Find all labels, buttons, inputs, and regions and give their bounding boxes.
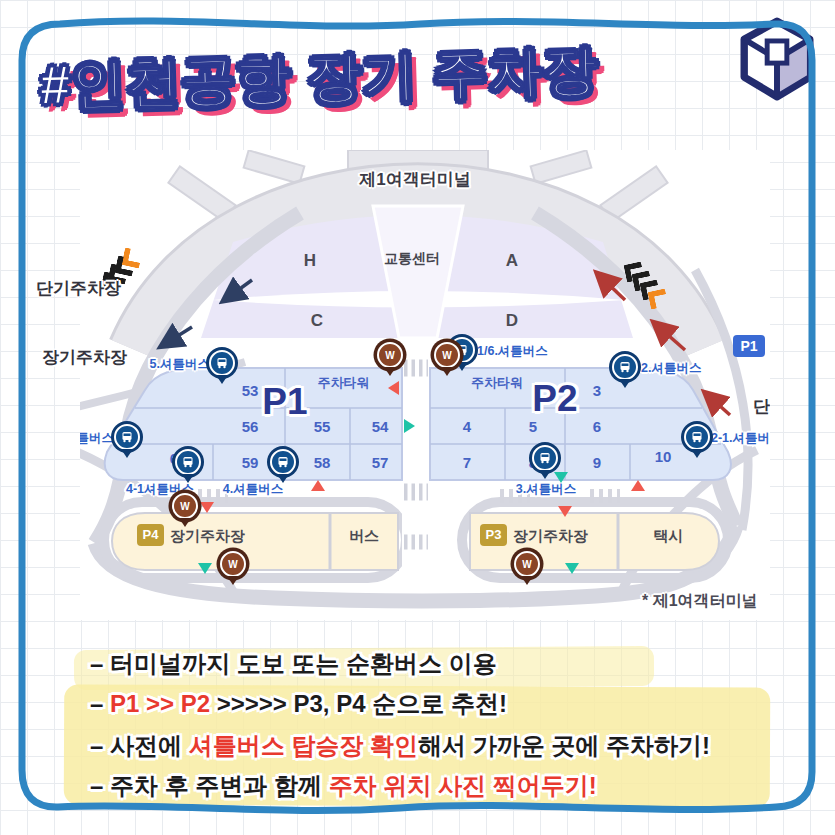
p1-section: 59 <box>242 454 259 471</box>
p2-section: 10 <box>655 448 672 465</box>
walkway-pin: W <box>220 551 246 577</box>
chevron-right-icon <box>647 288 668 309</box>
p4-lot-label: 장기주차장 <box>170 527 245 546</box>
tip-text: – 주차 후 주변과 함께 <box>90 772 329 799</box>
tip-text: >>>>> P3, P4 순으로 추천! <box>210 690 507 717</box>
gate-c-label: C <box>302 311 332 331</box>
bus-zone-label: 버스 <box>330 527 398 546</box>
bus-icon <box>691 431 703 443</box>
direction-triangle-icon <box>198 563 212 574</box>
bus-stop-pin <box>532 445 558 471</box>
tip-line-2: – P1 >> P2 >>>>> P3, P4 순으로 추천! <box>90 688 507 720</box>
p2-section: 6 <box>593 418 601 435</box>
bus-icon <box>121 431 133 443</box>
short-term-parking-label: 단기주차장 <box>36 277 121 300</box>
shuttle-stop-label: 4-1셔틀버스 <box>105 481 215 498</box>
long-term-parking-label: 장기주차장 <box>42 346 127 369</box>
p1-section: 56 <box>242 418 259 435</box>
bus-icon <box>182 456 194 468</box>
bus-icon <box>539 452 551 464</box>
p3-lot-label: 장기주차장 <box>513 527 588 546</box>
shuttle-stop-label: 2.셔틀버스 <box>641 360 701 377</box>
shuttle-stop-label: 2-1.셔틀버스 <box>711 430 770 447</box>
page-title: #인천공항 장기 주차장 <box>39 34 599 123</box>
direction-triangle-icon <box>404 419 415 433</box>
p4-badge: P4 <box>137 524 164 546</box>
bus-stop-pin <box>684 424 710 450</box>
map-footnote: * 제1여객터미널 <box>642 591 758 612</box>
tip-text-red: 셔틀버스 탑승장 확인 <box>189 732 418 759</box>
map-roads-layer <box>80 150 770 620</box>
airport-parking-map: 제1여객터미널 교통센터 H A C D P1 P2 주차타워 주차타워 53 … <box>80 150 770 620</box>
p1-section: 53 <box>242 382 259 399</box>
p2-section: 3 <box>593 382 601 399</box>
p1-section: 57 <box>372 454 389 471</box>
taxi-zone-label: 택시 <box>618 527 719 546</box>
p1-road-badge: P1 <box>733 335 765 357</box>
shuttle-stop-label: 4.셔틀버스 <box>203 481 303 498</box>
bus-stop-pin <box>175 449 201 475</box>
p1-section: 54 <box>372 418 389 435</box>
short-term-partial-label: 단 <box>753 395 770 418</box>
shuttle-stop-label: 셔틀버스 <box>80 430 114 447</box>
bus-stop-pin <box>612 354 638 380</box>
tip-line-1: – 터미널까지 도보 또는 순환버스 이용 <box>90 648 497 680</box>
direction-triangle-icon <box>200 502 214 513</box>
p2-section: 4 <box>463 418 471 435</box>
shuttle-stop-label: 3.셔틀버스 <box>496 481 596 498</box>
p1-section: 55 <box>314 418 331 435</box>
walkway-letter: W <box>174 495 196 517</box>
transport-center-label: 교통센터 <box>372 250 452 268</box>
terminal-label: 제1여객터미널 <box>315 168 515 191</box>
direction-triangle-icon <box>565 563 579 574</box>
walkway-letter: W <box>222 553 244 575</box>
bus-icon <box>277 456 289 468</box>
tip-text-red: 주차 위치 사진 찍어두기! <box>329 772 597 799</box>
walkway-pin: W <box>434 342 460 368</box>
bus-icon <box>619 361 631 373</box>
bus-stop-pin <box>270 449 296 475</box>
walkway-letter: W <box>379 344 401 366</box>
p2-section: 7 <box>463 454 471 471</box>
infographic-page: { "title": { "text": "#인천공항 장기 주차장" }, "… <box>0 0 835 835</box>
center-road <box>402 340 430 590</box>
p1-tower-label: 주차타워 <box>285 374 402 392</box>
gate-a-label: A <box>497 251 527 271</box>
gate-h-label: H <box>295 251 325 271</box>
tip-text: 해서 가까운 곳에 주차하기! <box>418 732 710 759</box>
p1-section: 58 <box>314 454 331 471</box>
tip-text-red: P1 >> P2 <box>110 690 210 717</box>
shuttle-stop-label: 1/6.셔틀버스 <box>477 343 548 360</box>
brand-logo-icon <box>736 16 818 102</box>
tip-text: – 터미널까지 도보 또는 순환버스 이용 <box>90 650 497 677</box>
walkway-letter: W <box>516 553 538 575</box>
bus-stop-pin <box>114 424 140 450</box>
direction-triangle-icon <box>388 381 399 395</box>
direction-triangle-icon <box>631 480 645 491</box>
gate-d-label: D <box>497 311 527 331</box>
p2-tower-label: 주차타워 <box>437 374 557 392</box>
direction-triangle-icon <box>311 480 325 491</box>
p2-section: 9 <box>593 454 601 471</box>
tip-line-3: – 사전에 셔틀버스 탑승장 확인해서 가까운 곳에 주차하기! <box>90 730 710 762</box>
shuttle-stop-label: 5.셔틀버스 <box>125 356 210 373</box>
bus-stop-pin <box>209 350 235 376</box>
walkway-pin: W <box>514 551 540 577</box>
tip-text: – 사전에 <box>90 732 189 759</box>
tip-line-4: – 주차 후 주변과 함께 주차 위치 사진 찍어두기! <box>90 770 597 802</box>
walkway-letter: W <box>436 344 458 366</box>
tip-text: – <box>90 690 110 717</box>
entry-arrow-right-3 <box>711 398 730 415</box>
bus-icon <box>216 357 228 369</box>
direction-triangle-icon <box>554 472 568 483</box>
p2-section: 5 <box>529 418 537 435</box>
walkway-pin: W <box>377 342 403 368</box>
walkway-pin: W <box>172 493 198 519</box>
p3-badge: P3 <box>480 524 507 546</box>
direction-triangle-icon <box>558 506 572 517</box>
